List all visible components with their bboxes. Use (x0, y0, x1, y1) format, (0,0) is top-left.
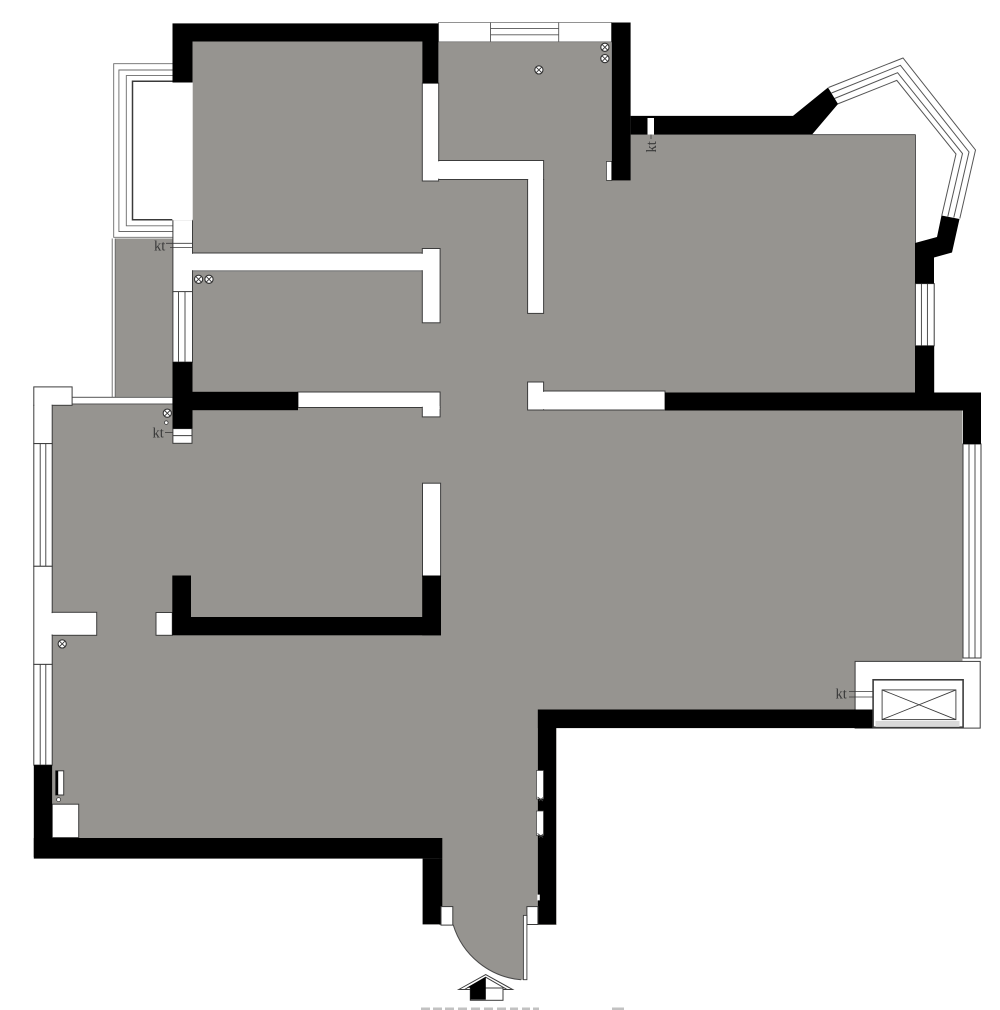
svg-text:kt: kt (154, 239, 165, 255)
svg-text:kt: kt (836, 687, 847, 703)
svg-text:kt: kt (153, 426, 164, 442)
svg-text:kt: kt (644, 141, 660, 152)
